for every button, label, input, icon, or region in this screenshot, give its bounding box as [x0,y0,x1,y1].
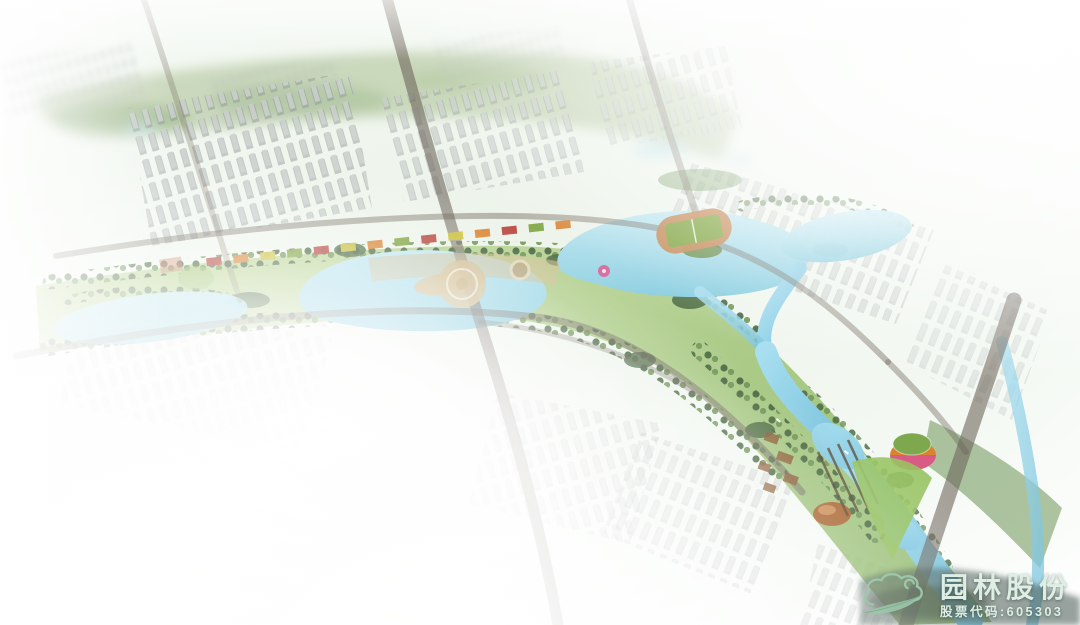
brand-name: 园林股份 [940,573,1072,602]
masterplan-rendering: 园林股份 股票代码:605303 [0,0,1080,625]
stock-code: 股票代码:605303 [940,606,1072,619]
mist-overlay [0,0,1080,625]
cloud-leaf-logo-icon [859,571,931,621]
watermark: 园林股份 股票代码:605303 [859,571,1072,621]
aerial-scene [0,0,1080,625]
